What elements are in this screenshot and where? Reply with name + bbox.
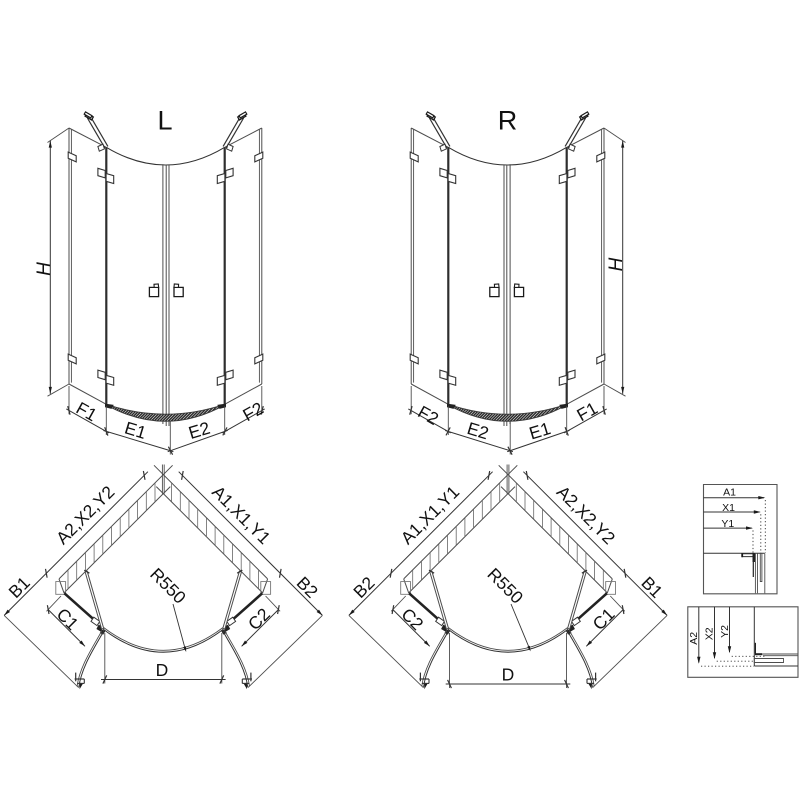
svg-text:X1: X1 xyxy=(722,502,735,514)
svg-text:A2: A2 xyxy=(688,632,700,645)
svg-text:H: H xyxy=(34,262,55,276)
svg-text:A1: A1 xyxy=(723,486,736,498)
svg-text:X2: X2 xyxy=(704,627,716,640)
svg-text:D: D xyxy=(502,665,515,685)
svg-text:D: D xyxy=(156,660,169,680)
svg-text:L: L xyxy=(157,105,172,135)
svg-text:Y2: Y2 xyxy=(719,625,731,638)
svg-text:Y1: Y1 xyxy=(721,518,734,530)
svg-text:R: R xyxy=(498,105,518,135)
svg-text:H: H xyxy=(606,257,627,271)
